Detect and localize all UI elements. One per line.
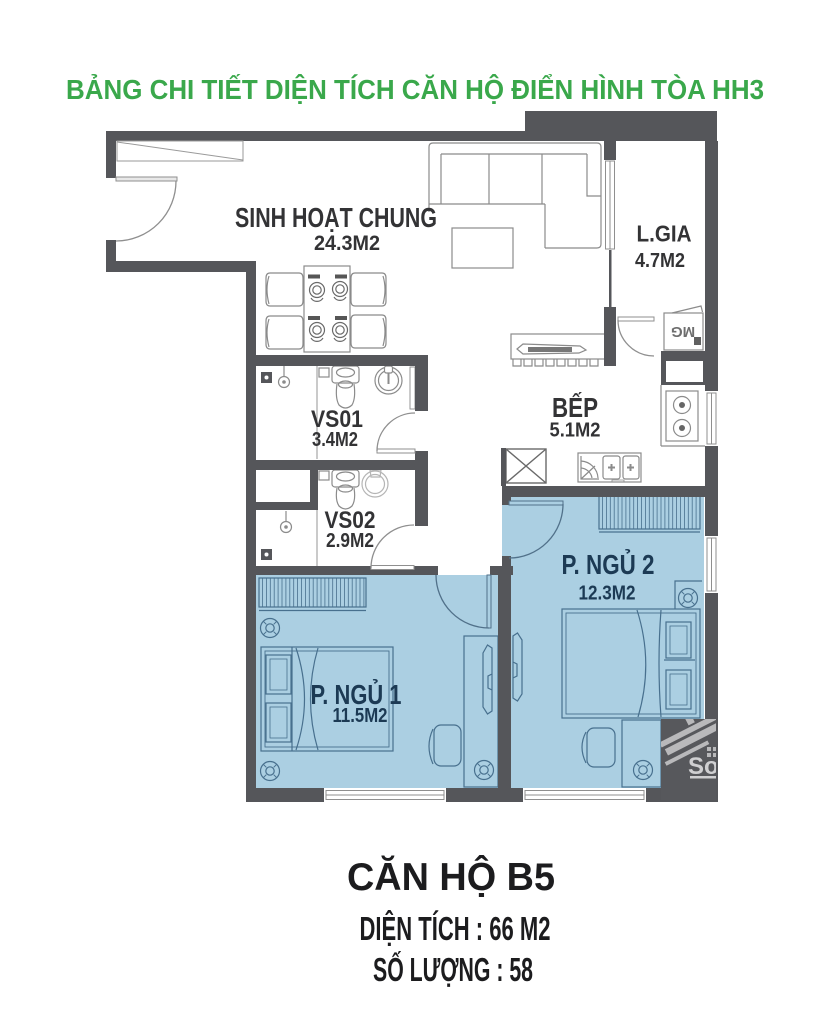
- svg-text:3.4M2: 3.4M2: [312, 429, 358, 451]
- svg-text:5.1M2: 5.1M2: [550, 420, 601, 442]
- svg-text:CĂN HỘ B5: CĂN HỘ B5: [347, 854, 555, 899]
- svg-text:SINH HOẠT CHUNG: SINH HOẠT CHUNG: [235, 202, 437, 233]
- svg-text:DIỆN TÍCH : 66 M2: DIỆN TÍCH : 66 M2: [360, 910, 551, 947]
- svg-text:4.7M2: 4.7M2: [635, 250, 685, 272]
- svg-text:SỐ LƯỢNG : 58: SỐ LƯỢNG : 58: [373, 950, 533, 988]
- svg-text:12.3M2: 12.3M2: [579, 582, 636, 605]
- svg-text:P. NGỦ 2: P. NGỦ 2: [562, 548, 655, 580]
- svg-text:L.GIA: L.GIA: [637, 221, 692, 247]
- svg-text:2.9M2: 2.9M2: [326, 530, 374, 552]
- svg-text:11.5M2: 11.5M2: [333, 704, 388, 727]
- svg-text:BẾP: BẾP: [552, 392, 598, 423]
- svg-text:24.3M2: 24.3M2: [314, 232, 380, 255]
- svg-text:MG: MG: [671, 323, 695, 340]
- svg-text:BẢNG CHI TIẾT DIỆN TÍCH CĂN HỘ: BẢNG CHI TIẾT DIỆN TÍCH CĂN HỘ ĐIỂN HÌNH…: [66, 73, 764, 105]
